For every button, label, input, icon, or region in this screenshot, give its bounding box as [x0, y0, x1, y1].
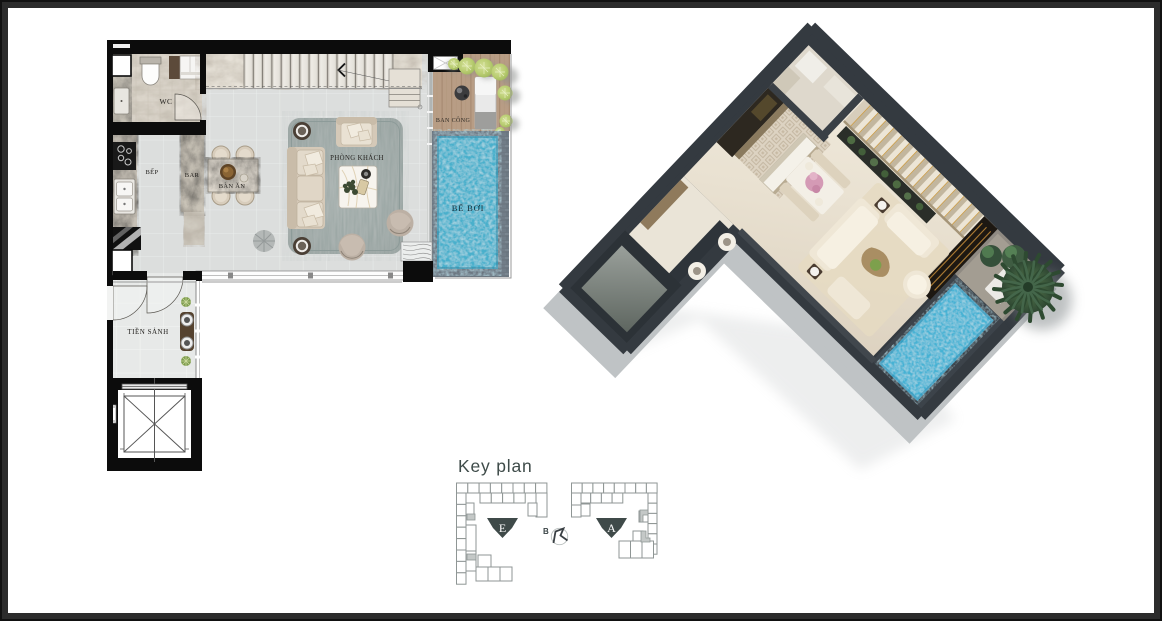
- svg-text:BỂ BƠI: BỂ BƠI: [452, 203, 484, 213]
- svg-text:BẾP: BẾP: [145, 168, 158, 176]
- svg-text:BÀN ĂN: BÀN ĂN: [219, 182, 246, 190]
- svg-text:BAR: BAR: [185, 172, 200, 179]
- svg-text:WC: WC: [159, 97, 172, 106]
- svg-text:A: A: [607, 521, 616, 535]
- svg-text:TIỀN SẢNH: TIỀN SẢNH: [127, 328, 168, 336]
- svg-text:E: E: [499, 521, 506, 535]
- svg-text:Key plan: Key plan: [458, 456, 533, 476]
- svg-text:PHÒNG KHÁCH: PHÒNG KHÁCH: [330, 154, 384, 162]
- svg-text:B: B: [543, 527, 549, 536]
- svg-text:BAN CÔNG: BAN CÔNG: [436, 116, 471, 124]
